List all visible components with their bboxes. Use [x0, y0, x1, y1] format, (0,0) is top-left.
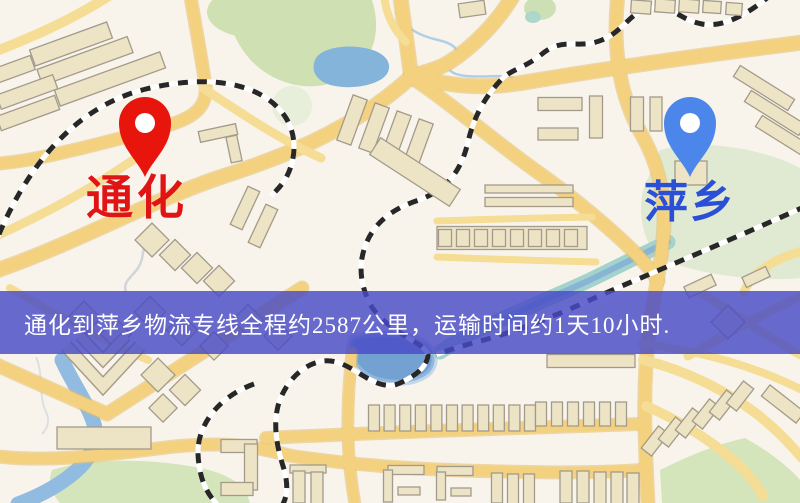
map-canvas[interactable]	[0, 0, 800, 503]
destination-pin-hole	[680, 113, 700, 133]
origin-pin[interactable]	[117, 93, 173, 177]
origin-pin-shape	[119, 97, 171, 177]
origin-city-label: 通化	[86, 176, 188, 223]
destination-pin-shape	[664, 97, 716, 177]
destination-pin[interactable]	[662, 93, 718, 177]
destination-city-label: 萍乡	[644, 181, 736, 225]
route-info-banner: 通化到萍乡物流专线全程约2587公里，运输时间约1天10小时.	[0, 291, 800, 354]
origin-pin-hole	[135, 113, 155, 133]
logistics-map-view: 通化 萍乡 通化到萍乡物流专线全程约2587公里，运输时间约1天10小时.	[0, 0, 800, 503]
route-info-text: 通化到萍乡物流专线全程约2587公里，运输时间约1天10小时.	[0, 306, 670, 340]
